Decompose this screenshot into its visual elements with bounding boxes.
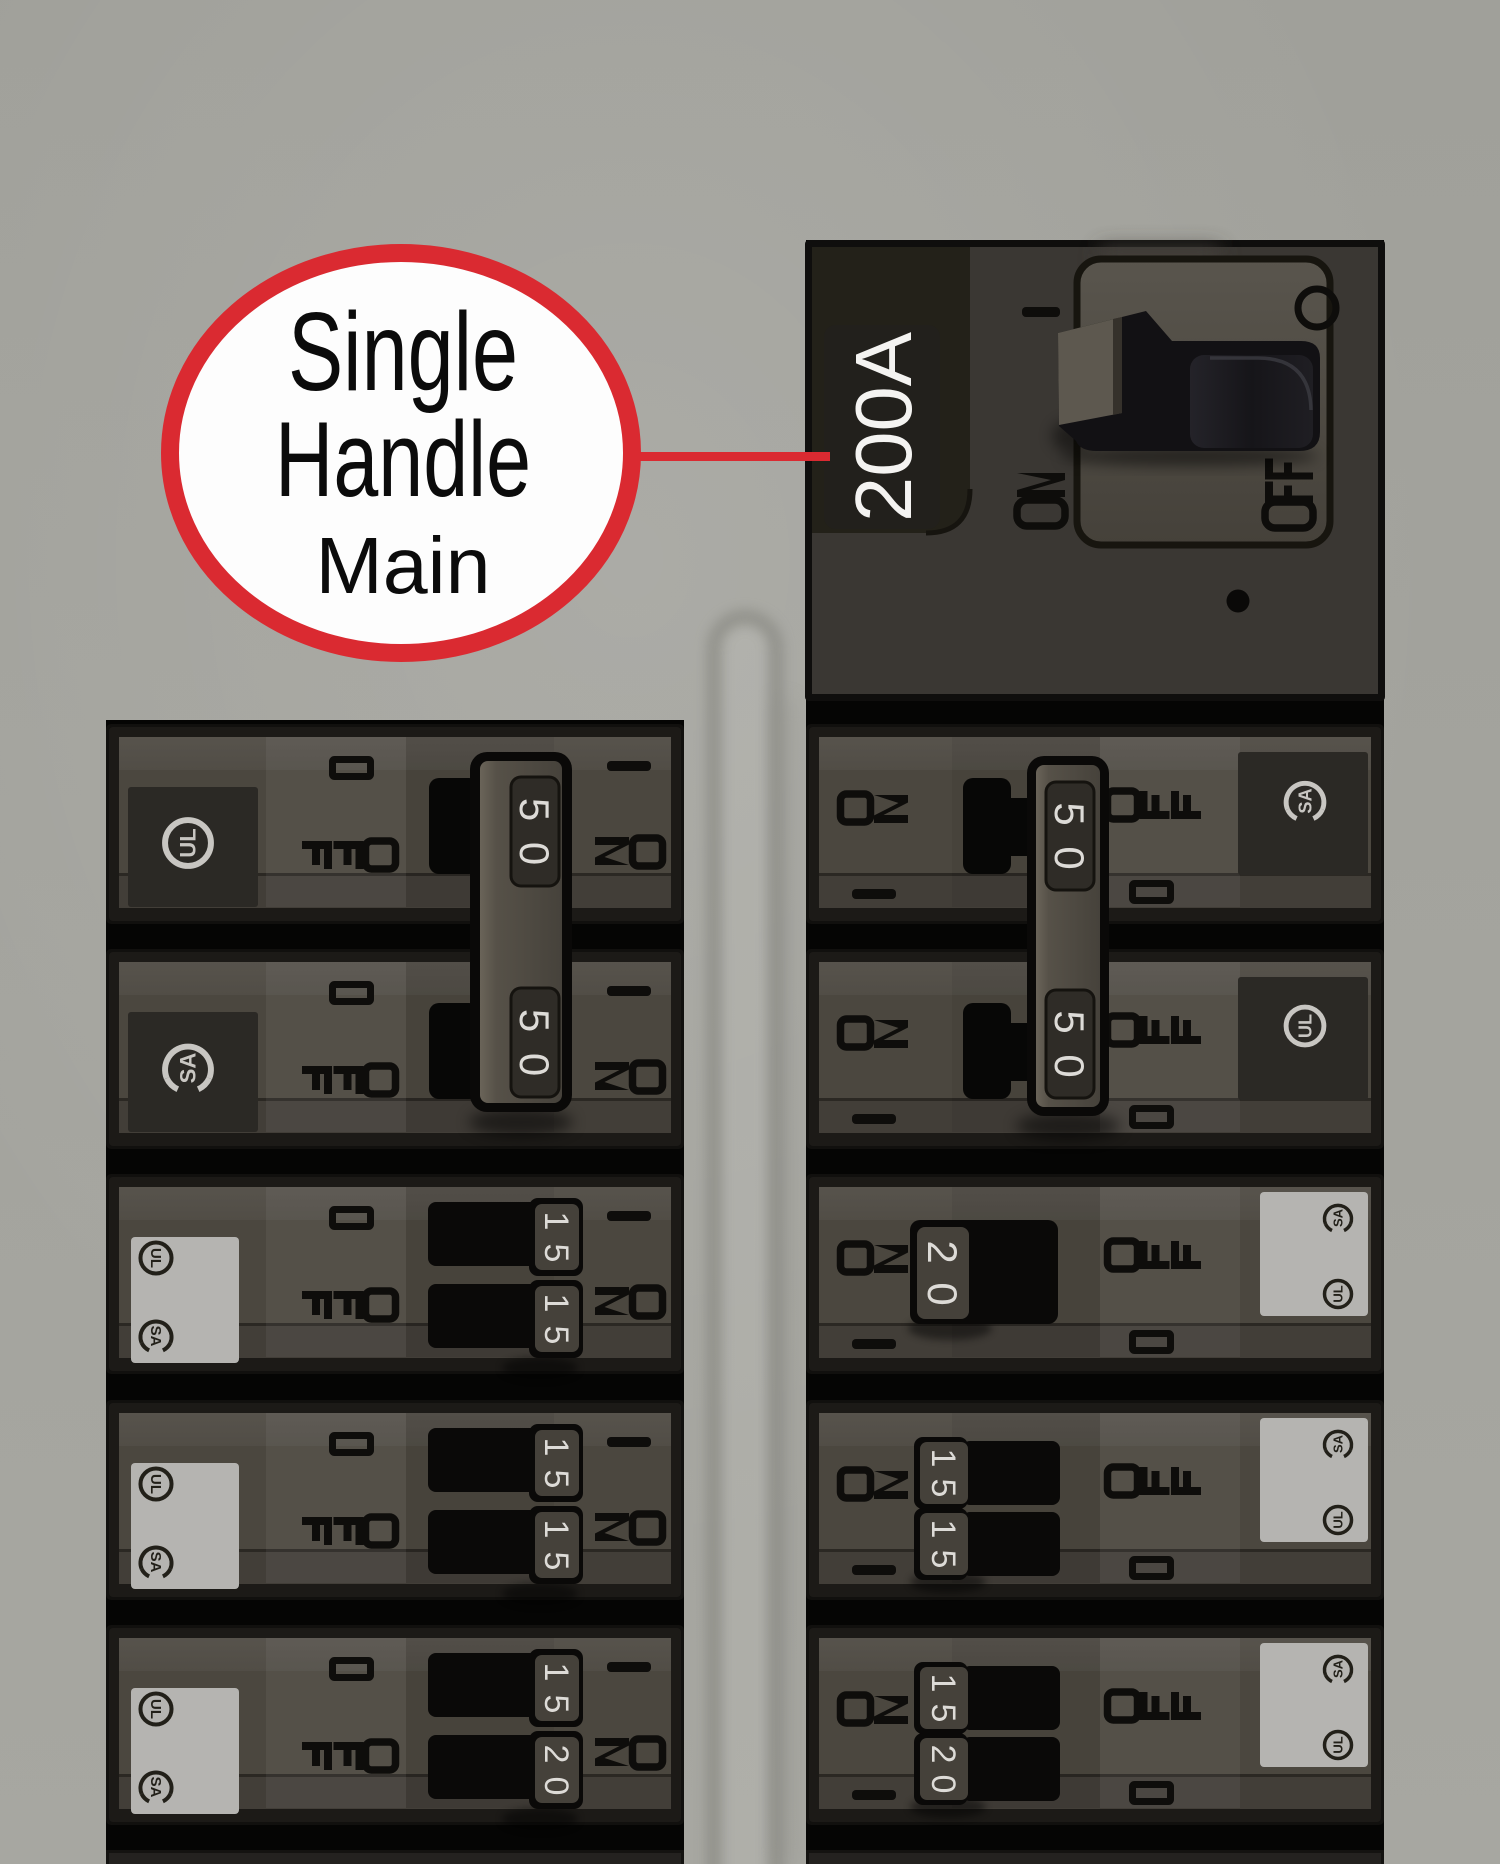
svg-text:1: 1	[924, 1674, 962, 1693]
svg-text:0: 0	[511, 842, 558, 865]
svg-text:Handle: Handle	[275, 399, 531, 519]
svg-text:0: 0	[924, 1775, 962, 1794]
svg-text:Main: Main	[316, 521, 491, 610]
svg-text:5: 5	[537, 1244, 575, 1263]
svg-text:5: 5	[537, 1470, 575, 1489]
svg-text:5: 5	[1046, 1010, 1093, 1033]
svg-text:1: 1	[924, 1449, 962, 1468]
svg-text:0: 0	[1046, 1054, 1093, 1077]
svg-text:5: 5	[511, 1009, 558, 1032]
svg-text:200A: 200A	[839, 331, 928, 522]
svg-text:1: 1	[537, 1438, 575, 1457]
svg-text:5: 5	[1046, 802, 1093, 825]
svg-text:5: 5	[924, 1704, 962, 1723]
svg-text:0: 0	[511, 1053, 558, 1076]
svg-text:1: 1	[924, 1520, 962, 1539]
svg-text:5: 5	[924, 1479, 962, 1498]
svg-text:0: 0	[537, 1777, 575, 1796]
svg-text:2: 2	[924, 1745, 962, 1764]
svg-text:1: 1	[537, 1294, 575, 1313]
svg-text:Single: Single	[288, 290, 518, 414]
svg-text:5: 5	[537, 1695, 575, 1714]
svg-text:5: 5	[537, 1552, 575, 1571]
svg-text:2: 2	[537, 1745, 575, 1764]
svg-text:1: 1	[537, 1663, 575, 1682]
svg-text:5: 5	[924, 1550, 962, 1569]
svg-text:1: 1	[537, 1212, 575, 1231]
svg-text:2: 2	[919, 1240, 966, 1263]
svg-text:5: 5	[537, 1326, 575, 1345]
svg-text:0: 0	[1046, 846, 1093, 869]
svg-text:1: 1	[537, 1520, 575, 1539]
svg-text:0: 0	[919, 1282, 966, 1305]
svg-text:5: 5	[511, 798, 558, 821]
